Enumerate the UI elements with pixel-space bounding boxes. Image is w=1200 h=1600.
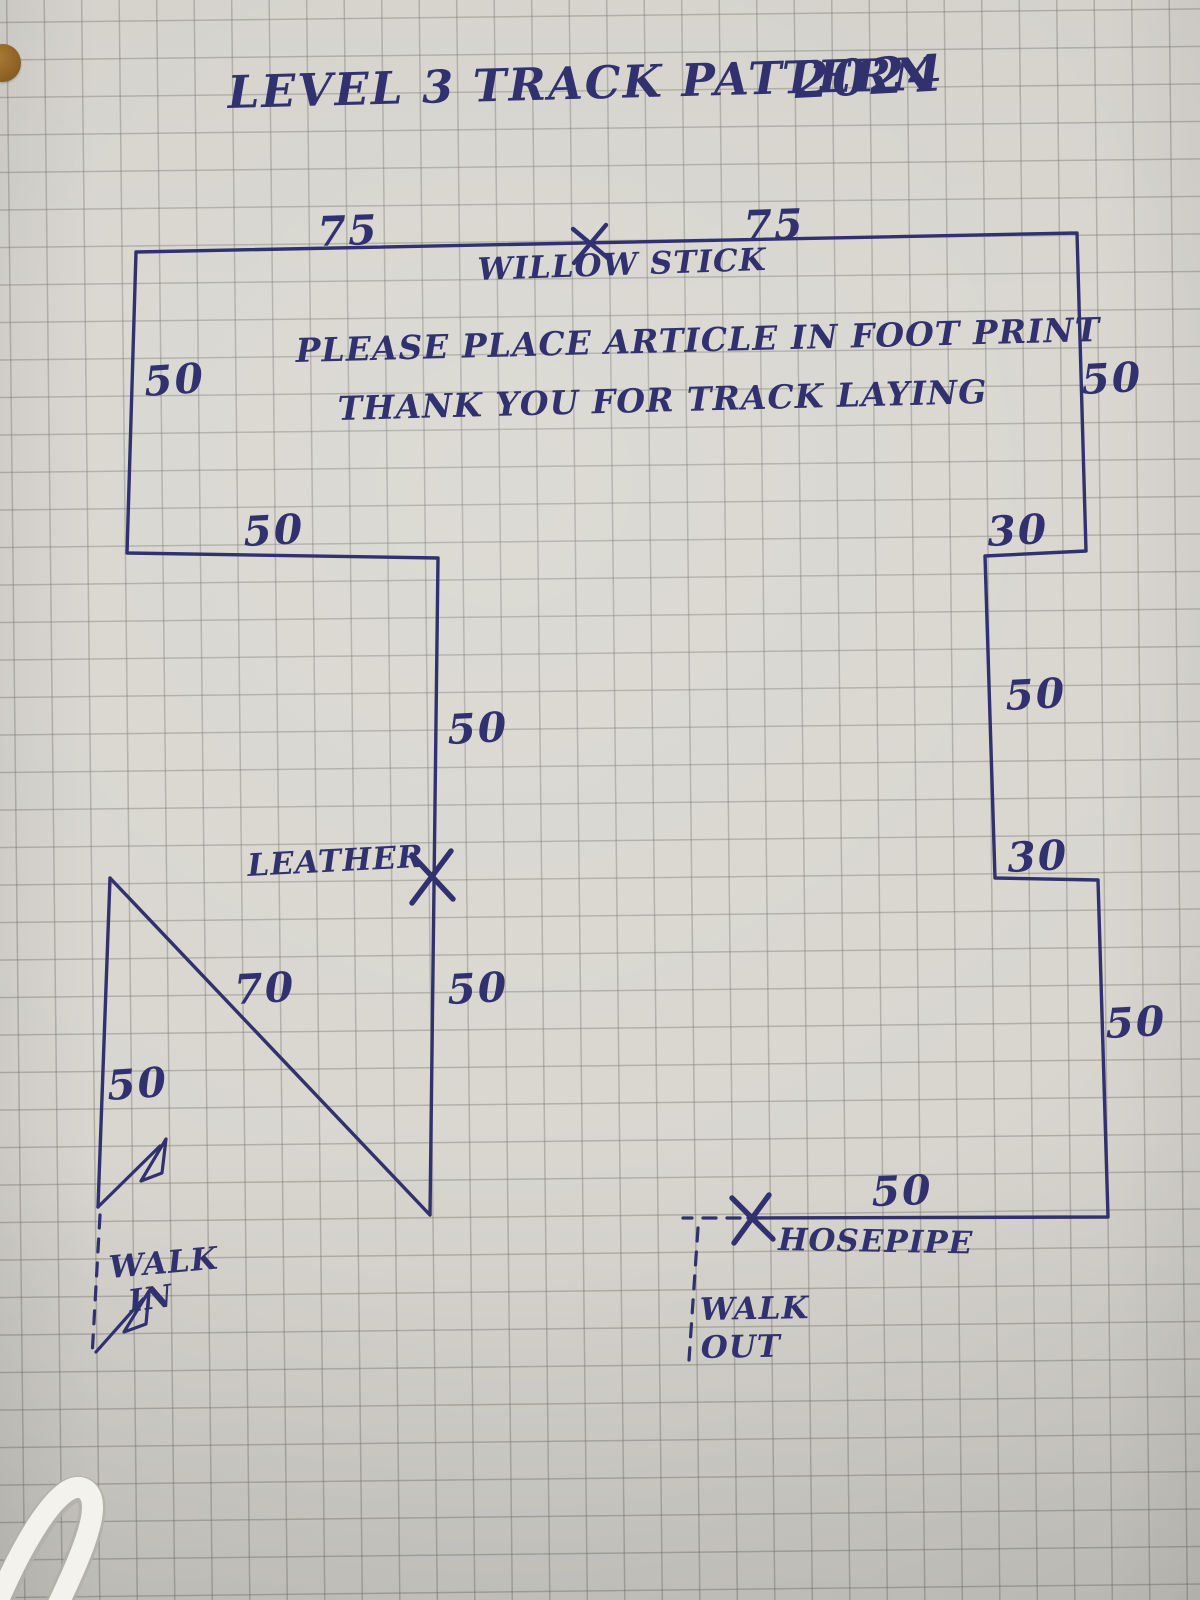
walk-dashed-lines <box>92 1215 740 1360</box>
measurement-left-lower: 50 <box>105 1058 169 1110</box>
instruction-line-2: THANK YOU FOR TRACK LAYING <box>337 372 988 428</box>
measurement-top-left: 75 <box>317 206 380 256</box>
leather-label: LEATHER <box>246 839 425 884</box>
walk-out-label-line2: OUT <box>701 1329 783 1366</box>
page-title-year: 2024 <box>792 43 947 110</box>
measurement-mid-upper: 50 <box>446 703 509 754</box>
measurement-mid-lower: 50 <box>446 963 509 1014</box>
willow-stick-label: WILLOW STICK <box>477 242 767 288</box>
measurement-bottom: 50 <box>871 1166 934 1216</box>
measurement-shelf: 50 <box>242 505 305 556</box>
measurement-right-mid: 50 <box>1004 669 1067 720</box>
walk-in-label-line2: IN <box>125 1278 176 1320</box>
measurement-left-upper: 50 <box>142 354 206 406</box>
track-diagram: LEVEL 3 TRACK PATTERN 2024 PLEASE PLACE … <box>0 0 1200 1600</box>
walk-out-label-line1: WALK <box>700 1290 810 1328</box>
measurement-jog-bottom: 30 <box>1006 831 1069 882</box>
measurement-right-upper: 50 <box>1080 353 1143 404</box>
measurement-right-lower: 50 <box>1104 997 1167 1048</box>
measurement-top-right: 75 <box>743 200 806 250</box>
hosepipe-label: HOSEPIPE <box>777 1222 974 1261</box>
photo-of-track-pattern-sheet: LEVEL 3 TRACK PATTERN 2024 PLEASE PLACE … <box>0 0 1200 1600</box>
white-cable <box>0 1487 93 1600</box>
measurement-jog-top: 30 <box>986 505 1049 556</box>
measurement-diagonal: 70 <box>233 963 296 1014</box>
instruction-line-1: PLEASE PLACE ARTICLE IN FOOT PRINT <box>294 310 1102 370</box>
